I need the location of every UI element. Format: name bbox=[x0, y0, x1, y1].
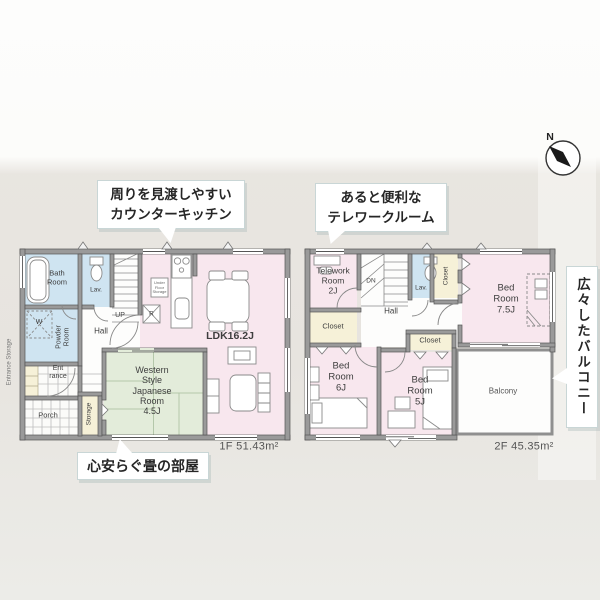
room-label-hall-2f: Hall bbox=[384, 306, 398, 315]
fridge-label: R bbox=[149, 310, 154, 317]
room-label-lav-2f: Lav. bbox=[415, 284, 427, 291]
annotation-telework: あると便利な テレワークルーム bbox=[315, 183, 447, 232]
annotation-counter-kitchen-line1: 周りを見渡しやすい bbox=[100, 185, 242, 205]
room-label-washer: W bbox=[36, 319, 43, 327]
room-label-japanese: Western Style Japanese Room 4.5J bbox=[132, 365, 171, 417]
room-label-ldk: LDK16.2J bbox=[206, 330, 254, 342]
floor1-area-label: 1F 51.43m² bbox=[219, 441, 278, 454]
room-label-closet-right: Closet bbox=[442, 267, 449, 285]
annotation-counter-kitchen-line2: カウンターキッチン bbox=[100, 205, 242, 225]
room-label-bath: Bath Room bbox=[47, 269, 67, 286]
room-label-telework: Telework Room 2J bbox=[316, 266, 350, 295]
annotation-telework-line1: あると便利な bbox=[318, 188, 444, 208]
room-label-closet-mid: Closet bbox=[419, 337, 440, 346]
floor2-area-label: 2F 45.35m² bbox=[494, 441, 553, 454]
annotation-counter-kitchen: 周りを見渡しやすい カウンターキッチン bbox=[97, 180, 245, 229]
annotation-tatami: 心安らぐ畳の部屋 bbox=[77, 452, 209, 480]
room-label-powder: Powder Room bbox=[55, 325, 70, 349]
room-label-entrance: Ent rance bbox=[49, 365, 67, 381]
room-label-lav-1f: Lav. bbox=[90, 286, 102, 293]
room-label-bed75: Bed Room 7.5J bbox=[493, 284, 518, 317]
underfloor-storage-label: Under Floor Storage bbox=[152, 281, 166, 295]
room-label-balcony: Balcony bbox=[489, 386, 517, 395]
annotation-balcony: 広々したバルコニー bbox=[566, 266, 598, 428]
room-label-storage: Storage bbox=[85, 403, 92, 426]
compass-north-label: N bbox=[546, 131, 554, 143]
room-label-bed5: Bed Room 5J bbox=[407, 376, 432, 409]
room-label-hall-1f: Hall bbox=[94, 326, 108, 335]
annotation-telework-line2: テレワークルーム bbox=[318, 208, 444, 228]
compass-icon bbox=[546, 141, 580, 175]
stairs-up-label: UP bbox=[115, 312, 125, 320]
stairs-dn-label: DN bbox=[366, 277, 375, 284]
room-label-bed6: Bed Room 6J bbox=[328, 362, 353, 395]
room-label-entrance-storage: Entrance Storage bbox=[7, 339, 14, 386]
room-label-porch: Porch bbox=[38, 412, 58, 421]
annotation-tatami-text: 心安らぐ畳の部屋 bbox=[87, 456, 199, 476]
room-label-closet-left: Closet bbox=[322, 323, 343, 332]
